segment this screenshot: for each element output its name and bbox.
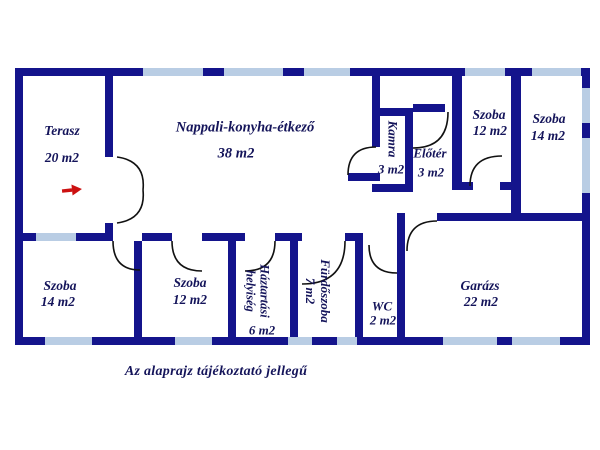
room-area-terasz: 20 m2	[45, 150, 79, 166]
room-area-eloter: 3 m2	[418, 166, 444, 181]
room-label-haztartasi: Háztartási helyiség	[243, 264, 272, 318]
room-label-nappali: Nappali-konyha-étkező	[176, 120, 315, 137]
room-area-kamra: 3 m2	[378, 163, 404, 178]
room-label-szoba12-bottom: Szoba	[173, 275, 206, 291]
room-area-szoba12-bottom: 12 m2	[173, 292, 207, 308]
room-area-wc: 2 m2	[370, 314, 396, 329]
room-label-haztartasi-line2: helyiség	[243, 264, 257, 318]
room-area-szoba14-bottom: 14 m2	[41, 294, 75, 310]
room-label-kamra: Kamra	[385, 121, 400, 158]
room-area-nappali: 38 m2	[218, 146, 255, 163]
room-label-furdoszoba: Fürdőszoba 7 m2	[302, 259, 332, 323]
entrance-arrow-icon	[61, 183, 82, 196]
room-area-haztartasi: 6 m2	[249, 324, 275, 339]
room-label-haztartasi-line1: Háztartási	[257, 264, 271, 318]
room-label-terasz: Terasz	[44, 123, 80, 139]
room-area-garazs: 22 m2	[464, 294, 498, 310]
room-area-szoba12-top: 12 m2	[473, 123, 507, 139]
room-label-furdoszoba-name: Fürdőszoba	[317, 259, 332, 323]
room-label-eloter: Előtér	[413, 147, 446, 162]
room-label-szoba12-top: Szoba	[472, 107, 505, 123]
room-label-szoba14-bottom: Szoba	[43, 278, 76, 294]
floor-plan: Terasz 20 m2 Nappali-konyha-étkező 38 m2…	[0, 0, 600, 450]
room-area-furdoszoba: 7 m2	[302, 259, 317, 323]
plan-caption: Az alaprajz tájékoztató jellegű	[125, 364, 307, 380]
room-label-szoba14-top: Szoba	[532, 111, 565, 127]
door-arcs	[113, 112, 502, 284]
room-area-szoba14-top: 14 m2	[531, 128, 565, 144]
room-label-garazs: Garázs	[460, 278, 499, 294]
floor-plan-drawing	[0, 0, 600, 450]
